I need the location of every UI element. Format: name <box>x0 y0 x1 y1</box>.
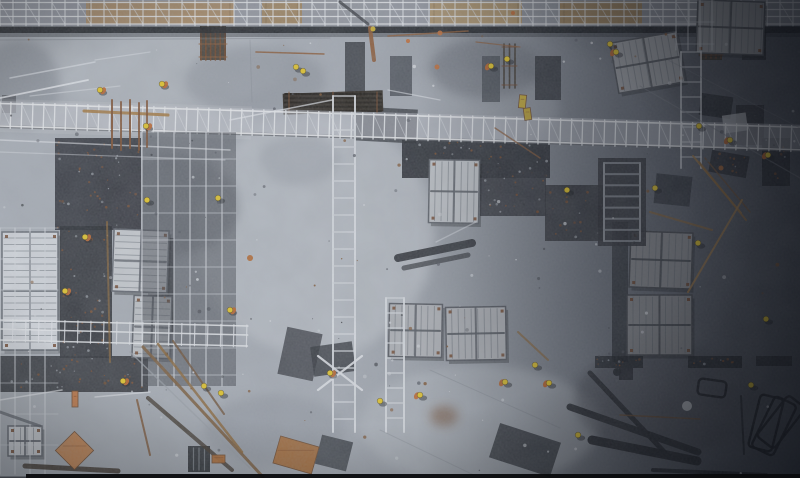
bottom-letterbox-strip <box>26 474 800 478</box>
vignette-overlay <box>0 0 800 478</box>
screenshot-root <box>0 0 800 478</box>
construction-site-aerial-photo <box>0 0 800 478</box>
